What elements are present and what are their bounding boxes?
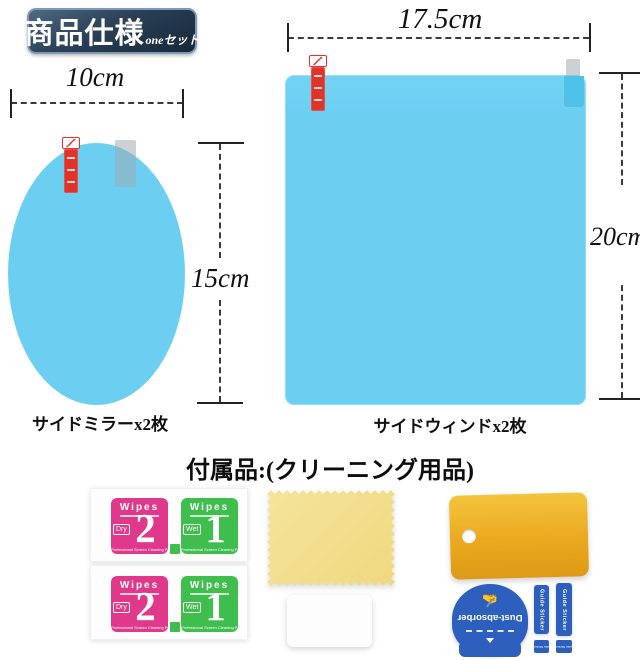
- measure-tick: [287, 23, 289, 52]
- dust-absorber-sticker: ✍ Dust-absorber: [452, 584, 528, 654]
- mirror-peel-tab-sticker: [64, 149, 78, 193]
- wipes-dry-number: 2: [123, 582, 168, 630]
- wipes-footer-text: Professional Screen Cleaning Paper: [181, 625, 238, 630]
- scraper-card: [287, 595, 372, 647]
- mirror-width-label: 10cm: [20, 62, 170, 93]
- dust-absorber-dashed-line: [466, 630, 514, 632]
- mirror-film-caption: サイドミラーx2枚: [10, 410, 190, 435]
- wipes-wet-number: 1: [193, 582, 238, 630]
- badge-title: 商品仕様: [24, 10, 144, 52]
- wipes-dry-packet: Wipes Dry 2 Professional Screen Cleaning…: [111, 498, 168, 554]
- measure-tick: [599, 72, 640, 74]
- guide-sticker-label: Guide Sticker: [534, 640, 549, 653]
- guide-sticker-small: Guide Sticker: [534, 640, 549, 653]
- wipes-footer-text: Professional Screen Cleaning Paper: [111, 625, 168, 630]
- product-spec-image: 商品仕様 oneセット 10cm 15cm サイドミラーx2枚 17.5cm 2…: [0, 0, 640, 660]
- cleaning-cloth-wrap: [267, 490, 395, 586]
- window-height-measure-line: [621, 285, 623, 398]
- window-width-label: 17.5cm: [340, 3, 540, 36]
- guide-sticker-strip: Guide Sticker: [534, 585, 549, 634]
- window-peel-tab-sticker: [311, 67, 325, 111]
- wipes-dry-number: 2: [123, 504, 168, 552]
- badge-subtitle: oneセット: [146, 31, 200, 48]
- window-height-measure-line: [621, 74, 623, 185]
- measure-tick: [599, 398, 640, 400]
- squeegee: [449, 492, 589, 580]
- window-film: [285, 75, 586, 405]
- mirror-height-measure-line: [219, 300, 221, 402]
- dust-absorber-icon: ✍: [452, 592, 528, 608]
- measure-tick: [197, 402, 243, 404]
- guide-sticker-small: Guide Sticker: [556, 640, 572, 653]
- wipes-footer-text: Professional Screen Cleaning Paper: [181, 547, 238, 552]
- window-film-caption: サイドウィンドx2枚: [345, 412, 555, 437]
- wipes-wet-packet: Wipes Wet 1 Professional Screen Cleaning…: [181, 576, 238, 632]
- guide-sticker-label: Guide Sticker: [556, 640, 572, 653]
- mirror-height-label: 15cm: [191, 263, 249, 294]
- sachet-green-square: [170, 544, 180, 554]
- wipes-dry-packet: Wipes Dry 2 Professional Screen Cleaning…: [111, 576, 168, 632]
- mirror-width-measure-line: [11, 102, 183, 104]
- mirror-peel-tab-notch: [62, 137, 80, 149]
- guide-sticker-label: Guide Sticker: [539, 589, 545, 631]
- sachet-green-square: [170, 622, 180, 632]
- measure-tick: [10, 89, 12, 118]
- window-width-measure-line: [288, 37, 589, 39]
- window-film-tab: [566, 59, 580, 77]
- dust-absorber-label: Dust-absorber: [452, 612, 528, 623]
- wipes-wet-number: 1: [193, 504, 238, 552]
- wipes-wet-packet: Wipes Wet 1 Professional Screen Cleaning…: [181, 498, 238, 554]
- wipes-sachet: Wipes Dry 2 Professional Screen Cleaning…: [90, 488, 248, 562]
- measure-tick: [198, 142, 244, 144]
- dust-absorber-triangle-icon: [486, 638, 494, 643]
- accessories-heading: 付属品:(クリーニング用品): [110, 450, 550, 485]
- cleaning-cloth: [267, 490, 395, 586]
- product-spec-badge: 商品仕様 oneセット: [27, 8, 197, 54]
- mirror-height-measure-line: [219, 144, 221, 258]
- mirror-film: [8, 143, 185, 405]
- window-height-label: 20cm: [590, 222, 640, 252]
- guide-sticker-strip: Guide Sticker: [556, 583, 572, 636]
- wipes-footer-text: Professional Screen Cleaning Paper: [111, 547, 168, 552]
- guide-sticker-label: Guide Sticker: [561, 589, 567, 631]
- measure-tick: [182, 89, 184, 118]
- mirror-film-tab: [115, 140, 136, 187]
- squeegee-hole: [462, 529, 476, 543]
- window-peel-tab-notch: [309, 55, 327, 67]
- measure-tick: [589, 23, 591, 52]
- window-film-tab-inner: [564, 76, 584, 107]
- wipes-sachet: Wipes Dry 2 Professional Screen Cleaning…: [90, 565, 248, 640]
